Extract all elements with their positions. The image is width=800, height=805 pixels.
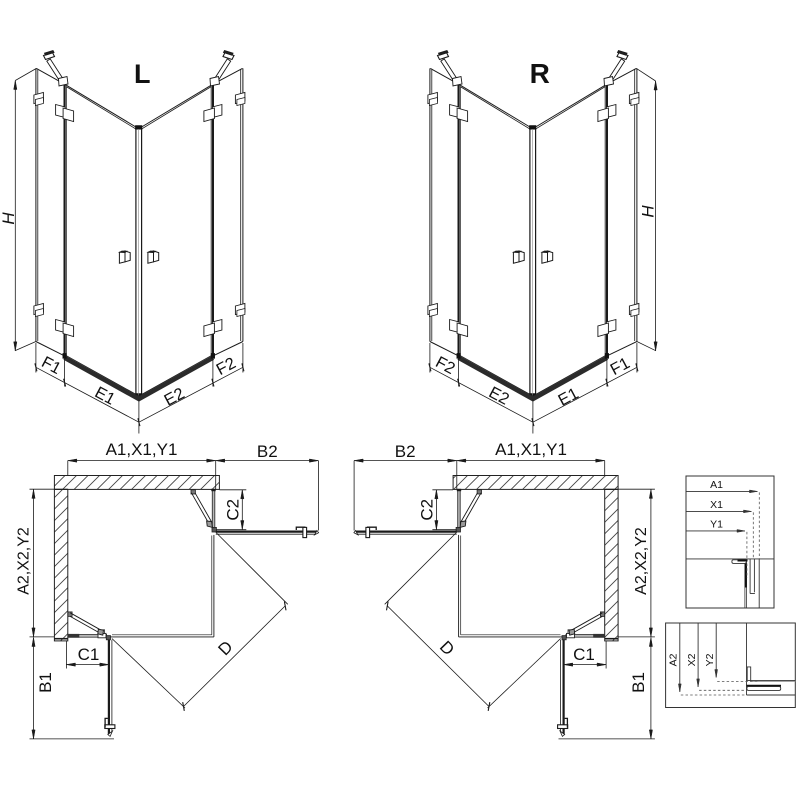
svg-text:A2,X2,Y2: A2,X2,Y2 — [16, 527, 33, 595]
svg-text:H: H — [0, 212, 18, 225]
svg-text:Y1: Y1 — [710, 519, 723, 531]
svg-text:C1: C1 — [573, 645, 595, 664]
svg-text:X1: X1 — [710, 499, 723, 511]
svg-text:A2,X2,Y2: A2,X2,Y2 — [633, 527, 650, 595]
svg-text:B2: B2 — [395, 442, 416, 461]
svg-text:L: L — [134, 59, 151, 89]
svg-text:C2: C2 — [224, 499, 243, 521]
svg-text:C2: C2 — [418, 499, 437, 521]
svg-text:A2: A2 — [668, 653, 680, 666]
svg-text:B2: B2 — [257, 442, 278, 461]
svg-text:R: R — [530, 58, 550, 89]
svg-text:H: H — [638, 205, 657, 218]
svg-text:A1: A1 — [710, 479, 723, 491]
svg-text:B1: B1 — [36, 672, 55, 693]
svg-text:B1: B1 — [629, 672, 648, 693]
svg-text:A1,X1,Y1: A1,X1,Y1 — [495, 440, 567, 459]
svg-text:Y2: Y2 — [704, 653, 716, 666]
svg-text:A1,X1,Y1: A1,X1,Y1 — [106, 440, 178, 459]
svg-text:C1: C1 — [78, 645, 100, 664]
svg-text:X2: X2 — [686, 653, 698, 666]
